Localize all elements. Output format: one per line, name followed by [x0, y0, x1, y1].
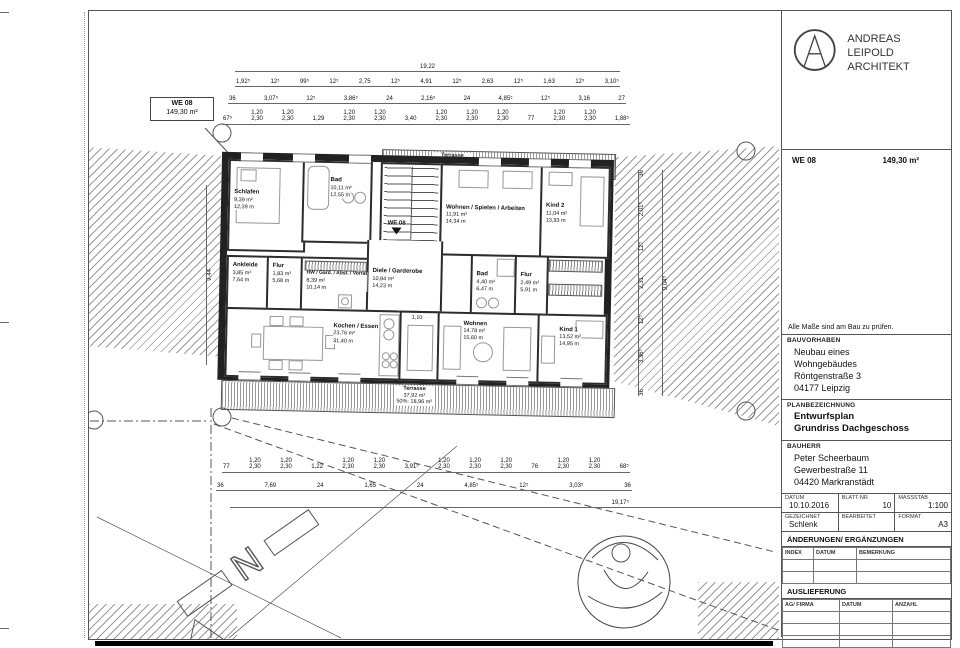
dim-top-row3: 363,07⁵12⁵3,86⁵242,16⁵244,85⁵12⁵3,1627	[228, 96, 626, 104]
sink-symbol	[488, 297, 499, 308]
dimension-label: 77	[527, 116, 536, 122]
dimension-label: 24	[416, 483, 425, 489]
dim-top-row2: 1,92⁵12⁵99⁵12⁵2,7512⁵4,9112⁵2,6312⁵1,631…	[235, 79, 620, 87]
dimension-label: 1,22	[310, 464, 324, 470]
unit-area: 149,30 m²	[883, 156, 919, 165]
room-area: 10,84 m²	[372, 276, 422, 283]
dimension-label: 9,04⁵	[663, 276, 669, 290]
unit-summary-section: WE 08 149,30 m² Alle Maße sind am Bau zu…	[782, 150, 951, 335]
dim-right-chain: 362,01⁵12⁵2,3112⁵3,36⁵36	[638, 170, 645, 396]
dimension-label: 1,20 2,30	[465, 110, 479, 123]
dimension-label: 1,88⁵	[614, 116, 630, 122]
room-name: Flur	[273, 263, 292, 270]
bauherr-section: BAUHERR Peter Scheerbaum Gewerbestraße 1…	[782, 441, 951, 493]
dimension-label: 1,20 2,30	[281, 110, 295, 123]
project-line: Neubau eines	[794, 346, 951, 358]
room-name: Diele / Garderobe	[373, 268, 423, 276]
architect-logo-section: ANDREAS LEIPOLD ARCHITEKT	[782, 11, 951, 150]
room-name: Ankleide	[233, 262, 258, 269]
terrace-area: 37,92 m²	[403, 392, 425, 398]
dim-bottom-windows: 771,20 2,301,20 2,301,221,20 2,301,20 2,…	[222, 458, 630, 473]
dimension-label: 1,20 2,30	[279, 458, 293, 471]
dimension-label: 68⁵	[619, 464, 630, 470]
room-name: Kind 2	[546, 203, 567, 210]
architect-logo-icon	[790, 25, 839, 77]
dimension-label: 24	[385, 96, 394, 102]
col-index: INDEX	[783, 547, 814, 559]
dim-top-overall: 19,22	[235, 64, 620, 72]
dimension-label: 24	[316, 483, 325, 489]
bearbeitet-label: BEARBEITET	[842, 514, 892, 520]
window-symbol	[506, 377, 528, 386]
table-row	[783, 623, 951, 635]
project-line: Röntgenstraße 3	[794, 370, 951, 382]
unit-area: 149,30 m²	[152, 109, 212, 118]
client-line: Gewerbestraße 11	[794, 464, 951, 476]
building-outline: Schlafen9,39 m²12,39 m Bad10,11 m²12,55 …	[217, 152, 614, 388]
toilet-symbol	[476, 297, 487, 308]
dimension-label: 3,36⁵	[639, 349, 645, 363]
dimension-label: 7,69	[263, 483, 277, 489]
dimension-label: 2,31	[639, 277, 645, 289]
unit-number: WE 08	[152, 100, 212, 109]
dining-table-symbol	[263, 326, 324, 361]
pillow-symbol	[240, 169, 256, 181]
dimension-label: 12⁵	[639, 315, 645, 324]
plan-title-line: Entwurfsplan	[794, 411, 951, 424]
aenderungen-table: INDEX DATUM BEMERKUNG	[782, 547, 951, 584]
room-area: 4,40 m²	[476, 279, 495, 285]
dimension-label: 1,29	[312, 116, 326, 122]
room-floor-area: 31,40 m	[333, 338, 378, 345]
dimension-label: 67⁵	[222, 116, 233, 122]
room-bad-1: Bad10,11 m²12,55 m	[301, 160, 373, 243]
dimension-label: 12⁵	[518, 483, 529, 489]
room-floor-area: 6,47 m	[476, 286, 495, 292]
entrance-arrow-icon	[391, 227, 401, 234]
site-hatch-bottom-right	[698, 582, 779, 640]
window-symbol	[349, 154, 371, 163]
dimension-label: 36	[639, 389, 645, 396]
room-floor-area: 10,14 m	[306, 285, 367, 292]
sink-symbol	[354, 192, 366, 204]
dimension-label: 1,20 2,30	[372, 458, 386, 471]
blattnr-value: 10	[842, 501, 892, 510]
dimension-label: 3,40	[404, 116, 418, 122]
dimension-label: 12⁵	[540, 96, 551, 102]
dimension-label: 1,20 2,30	[557, 458, 571, 471]
coffee-table-symbol	[473, 342, 493, 362]
dimension-label: 4,91	[419, 79, 433, 85]
room-floor-area: 15,60 m	[463, 335, 487, 342]
section-label: PLANBEZEICHNUNG	[782, 400, 951, 409]
room-schlafen: Schlafen9,39 m²12,39 m	[227, 159, 307, 253]
dimension-label: 76	[530, 464, 539, 470]
dimension-label: 1,20 2,30	[248, 458, 262, 471]
dimension-label: 19,17⁵	[610, 500, 630, 506]
dimension-label: 99⁵	[299, 79, 310, 85]
room-floor-area: 14,95 m	[559, 341, 581, 348]
project-line: Wohngebäudes	[794, 358, 951, 370]
room-name: Flur	[520, 272, 539, 279]
edge-tick	[0, 322, 9, 323]
dimension-label: 12⁵	[451, 79, 462, 85]
dimension-label: 1,20 2,30	[588, 458, 602, 471]
auslieferung-header: AUSLIEFERUNG	[782, 584, 951, 599]
architect-name-line1: ANDREAS LEIPOLD	[847, 33, 945, 61]
sofa-symbol	[503, 327, 532, 372]
desk-symbol	[548, 172, 572, 186]
dimension-label: 9,44	[207, 269, 213, 281]
shaft: 1,10	[398, 311, 441, 382]
room-name: Kochen / Essen	[333, 323, 378, 331]
room-wohnen-spielen-arbeiten: Wohnen / Spielen / Arbeiten11,91 m²14,34…	[439, 163, 545, 257]
chair-symbol	[251, 333, 261, 347]
room-kind-2: Kind 211,04 m²13,93 m	[539, 165, 611, 258]
room-diele-garderobe: Diele / Garderobe10,84 m²14,23 m	[366, 240, 443, 314]
room-name: Schlafen	[234, 189, 259, 196]
dimension-label: 1,20 2,30	[496, 110, 510, 123]
shaft-box	[407, 325, 434, 372]
room-floor-area: 14,23 m	[372, 283, 422, 290]
room-bad-2: Bad4,40 m²6,47 m	[470, 254, 519, 317]
table-row	[783, 611, 951, 623]
terrace-label: Terrasse 37,92 m² 50%: 18,96 m²	[394, 385, 434, 406]
client-line: Peter Scheerbaum	[794, 452, 951, 464]
dimension-label: 3,16	[577, 96, 591, 102]
architect-name-line2: ARCHITEKT	[847, 61, 945, 75]
room-name: Wohnen	[463, 320, 487, 327]
window-symbol	[569, 159, 591, 168]
room-kochen-essen: Kochen / Essen23,76 m²31,40 m	[224, 307, 403, 381]
floor-plan: Terrasse 15,91 m² 50%: 7,96 m² Schlafen9…	[217, 146, 623, 424]
room-name: Bad	[477, 271, 496, 278]
room-area: 9,39 m²	[234, 197, 259, 204]
dimension-label: 1,20 2,30	[583, 110, 597, 123]
desk-symbol	[458, 170, 488, 189]
desk-symbol	[541, 336, 556, 364]
wardrobe-symbol	[548, 284, 602, 297]
room-area: 10,11 m²	[330, 185, 351, 191]
measure-note: Alle Maße sind am Bau zu prüfen.	[788, 324, 893, 331]
bed-symbol	[580, 176, 605, 226]
dimension-label: 36	[623, 483, 632, 489]
room-flur-rechts: Flur2,49 m²5,91 m	[514, 255, 549, 318]
section-label: BAUVORHABEN	[782, 335, 951, 344]
room-floor-area: 7,64 m	[232, 277, 257, 284]
dimension-label: 3,07⁵	[263, 96, 279, 102]
fold-mark-rule	[84, 12, 85, 638]
dimension-label: 24	[463, 96, 472, 102]
bauvorhaben-section: BAUVORHABEN Neubau eines Wohngebäudes Rö…	[782, 335, 951, 400]
window-symbol	[338, 373, 360, 382]
room-name: Kind 1	[559, 326, 581, 333]
dim-right-overall: 9,04⁵	[662, 170, 669, 396]
dimension-label: 1,20 2,30	[552, 110, 566, 123]
room-area: 14,78 m²	[463, 328, 487, 335]
shower-symbol	[497, 259, 515, 277]
dimension-label: 4,85⁵	[463, 483, 479, 489]
table-row	[783, 635, 951, 647]
desk-symbol	[502, 171, 532, 190]
room-floor-area: 12,55 m	[330, 192, 351, 198]
window-symbol	[529, 158, 551, 167]
window-symbol	[288, 372, 310, 381]
dimension-label: 12⁵	[513, 79, 524, 85]
aenderungen-header: ÄNDERUNGEN/ ERGÄNZUNGEN	[782, 532, 951, 547]
dim-bottom-overall: 19,17⁵	[230, 500, 860, 508]
window-symbol	[560, 378, 582, 387]
dimension-label: 2,01⁵	[639, 202, 645, 216]
dimension-label: 1,20 2,30	[435, 110, 449, 123]
dimension-label: 2,16⁵	[420, 96, 436, 102]
dimension-label: 19,22	[419, 64, 436, 70]
planbezeichnung-section: PLANBEZEICHNUNG Entwurfsplan Grundriss D…	[782, 400, 951, 442]
room-wohnen: Wohnen14,78 m²15,60 m	[436, 311, 541, 383]
dimension-label: 1,20 2,30	[341, 458, 355, 471]
dim-left-overall: 9,44	[206, 185, 213, 365]
sheet-bottom-bar	[95, 641, 773, 646]
room-area: 11,04 m²	[546, 210, 567, 216]
chair-symbol	[269, 360, 283, 370]
sofa-symbol	[443, 325, 462, 369]
dimension-label: 2,75	[358, 79, 372, 85]
dimension-label: 3,10⁵	[604, 79, 620, 85]
dimension-label: 1,20 2,30	[437, 458, 451, 471]
col-datum: DATUM	[840, 599, 893, 611]
info-grid-row2: GEZEICHNETSchlenk BEARBEITET FORMATA3	[782, 513, 951, 532]
dimension-label: 1,92⁵	[235, 79, 251, 85]
dim-bottom-row2: 367,69241,65244,85⁵12⁵3,03⁵36	[216, 483, 632, 491]
edge-tick	[0, 12, 9, 13]
col-anzahl: ANZAHL	[893, 599, 951, 611]
dimension-label: 1,20 2,30	[468, 458, 482, 471]
massstab-value: 1:100	[898, 501, 948, 510]
unit-number: WE 08	[792, 156, 816, 165]
dimension-label: 3,91⁵	[404, 464, 420, 470]
room-area: 1,83 m²	[272, 271, 291, 277]
datum-value: 10.10.2016	[785, 501, 835, 510]
dimension-label: 12⁵	[390, 79, 401, 85]
dimension-label: 1,10	[412, 315, 423, 321]
dimension-label: 4,85⁵	[498, 96, 514, 102]
chair-symbol	[289, 316, 303, 326]
dimension-label: 12⁵	[574, 79, 585, 85]
architect-name: ANDREAS LEIPOLD ARCHITEKT	[847, 25, 945, 74]
dimension-label: 1,20 2,30	[499, 458, 513, 471]
info-grid-row1: DATUM10.10.2016 BLATT-NR10 MASSSTAB1:100	[782, 494, 951, 513]
chair-symbol	[289, 360, 303, 370]
wardrobe-symbol	[549, 260, 603, 273]
dimension-label: 1,20 2,30	[373, 110, 387, 123]
dimension-label: 12⁵	[269, 79, 280, 85]
dimension-label: 36	[228, 96, 237, 102]
room-area: 3,85 m²	[232, 270, 257, 277]
auslieferung-table: AG/ FIRMA DATUM ANZAHL	[782, 599, 951, 648]
room-area: 13,52 m²	[559, 334, 581, 341]
dimension-label: 3,03⁵	[568, 483, 584, 489]
room-floor-area: 13,93 m	[546, 217, 567, 223]
client-line: 04420 Markranstädt	[794, 476, 951, 488]
dimension-label: 12⁵	[328, 79, 339, 85]
window-symbol	[293, 153, 315, 162]
table-row	[783, 571, 951, 583]
room-area: 8,39 m²	[306, 278, 367, 285]
room-kind-1: Kind 113,52 m²14,95 m	[536, 313, 607, 384]
dimension-label: 77	[222, 464, 231, 470]
window-symbol	[241, 152, 263, 161]
dimension-label: 1,20 2,30	[342, 110, 356, 123]
window-symbol	[238, 371, 260, 380]
site-hatch-bottom-left	[89, 604, 237, 640]
room-floor-area: 5,91 m	[520, 287, 539, 293]
plan-title-line: Grundriss Dachgeschoss	[794, 423, 951, 436]
window-symbol	[456, 376, 478, 385]
room-floor-area: 14,34 m	[446, 219, 525, 227]
dimension-label: 36	[639, 170, 645, 177]
dimension-label: 12⁵	[305, 96, 316, 102]
project-line: 04177 Leipzig	[794, 382, 951, 394]
terrace-half-area: 50%: 18,96 m²	[396, 399, 432, 406]
col-agfirma: AG/ FIRMA	[783, 599, 840, 611]
entrance-marker: WE 08	[387, 220, 405, 234]
dimension-label: 3,86⁵	[343, 96, 359, 102]
room-area: 2,49 m²	[520, 280, 539, 286]
dimension-label: 27	[617, 96, 626, 102]
chair-symbol	[269, 316, 283, 326]
window-symbol	[479, 157, 501, 166]
terrace-name: Terrasse	[403, 386, 426, 392]
dimension-label: 36	[216, 483, 225, 489]
room-name: Bad	[330, 177, 351, 184]
room-area: 23,76 m²	[333, 331, 378, 338]
section-label: BAUHERR	[782, 441, 951, 450]
room-floor-area: 12,39 m	[234, 204, 259, 211]
col-bemerkung: BEMERKUNG	[857, 547, 951, 559]
site-hatch-left	[89, 143, 225, 357]
hob-symbol	[382, 360, 390, 368]
gezeichnet-value: Schlenk	[785, 520, 835, 529]
col-datum: DATUM	[814, 547, 857, 559]
title-block: ANDREAS LEIPOLD ARCHITEKT WE 08 149,30 m…	[781, 11, 951, 637]
room-ankleide: Ankleide3,85 m²7,64 m	[226, 255, 271, 312]
room-floor-area: 5,68 m	[272, 278, 291, 284]
format-value: A3	[898, 520, 948, 529]
bathtub-symbol	[307, 166, 330, 210]
table-row	[783, 559, 951, 571]
dimension-label: 1,20 2,30	[250, 110, 264, 123]
entrance-unit-label: WE 08	[388, 220, 406, 226]
dimension-label: 1,65	[363, 483, 377, 489]
edge-tick	[0, 628, 9, 629]
dimension-label: 2,63	[481, 79, 495, 85]
room-hw-gard-abst-vorrat: HW / Gard. / Abst. / Vorrat8,39 m²10,14 …	[300, 256, 371, 313]
dimension-label: 12⁵	[639, 242, 645, 251]
dim-top-windows: 67⁵1,20 2,301,20 2,301,291,20 2,301,20 2…	[222, 110, 630, 125]
unit-label-box: WE 08 149,30 m²	[150, 97, 214, 121]
dimension-label: 1,63	[542, 79, 556, 85]
